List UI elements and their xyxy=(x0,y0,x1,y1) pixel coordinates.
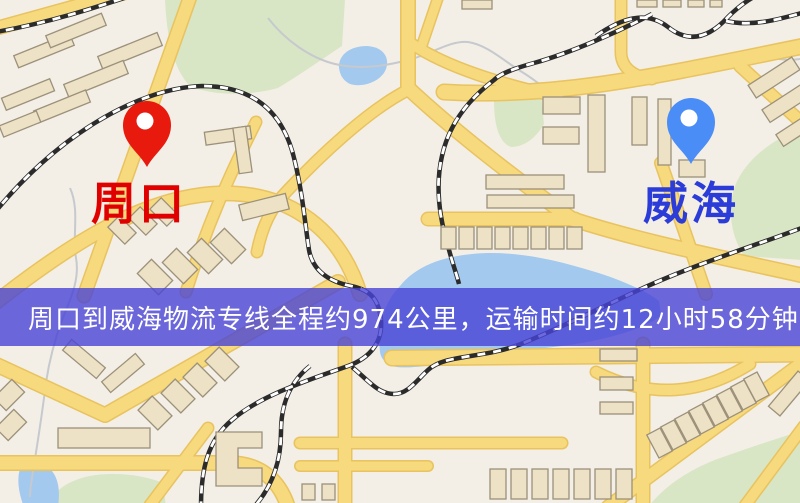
building xyxy=(600,402,633,414)
building xyxy=(600,377,633,390)
building xyxy=(543,127,579,144)
building xyxy=(486,175,564,189)
building xyxy=(441,227,456,249)
building xyxy=(459,227,474,249)
building xyxy=(710,0,722,7)
building xyxy=(58,428,150,448)
building xyxy=(616,469,632,499)
building xyxy=(532,469,548,499)
building xyxy=(511,469,527,499)
building xyxy=(531,227,546,249)
building xyxy=(637,0,657,7)
building xyxy=(513,227,528,249)
route-info-text: 周口到威海物流专线全程约974公里，运输时间约12小时58分钟. xyxy=(28,299,800,336)
building xyxy=(549,227,564,249)
building xyxy=(595,469,611,499)
building xyxy=(588,95,605,172)
building xyxy=(477,227,492,249)
building xyxy=(462,0,492,9)
building xyxy=(574,469,590,499)
building xyxy=(487,195,574,208)
destination-label: 威海 xyxy=(643,177,739,230)
building xyxy=(495,227,510,249)
origin-pin-hole xyxy=(137,113,154,130)
building xyxy=(679,160,705,177)
building xyxy=(490,469,506,499)
origin-label: 周口 xyxy=(91,177,187,230)
route-info-banner: 周口到威海物流专线全程约974公里，运输时间约12小时58分钟. xyxy=(0,288,800,346)
map-canvas: 周口 威海 xyxy=(0,0,800,503)
building xyxy=(663,0,681,7)
building xyxy=(567,227,582,249)
building xyxy=(553,469,569,499)
destination-pin-hole xyxy=(681,110,698,127)
building xyxy=(688,0,704,7)
building xyxy=(632,97,647,145)
building xyxy=(543,97,580,114)
building xyxy=(302,484,315,500)
map-screenshot: 周口 威海 周口到威海物流专线全程约974公里，运输时间约12小时58分钟. xyxy=(0,0,800,503)
building xyxy=(322,484,335,500)
building xyxy=(600,349,637,361)
